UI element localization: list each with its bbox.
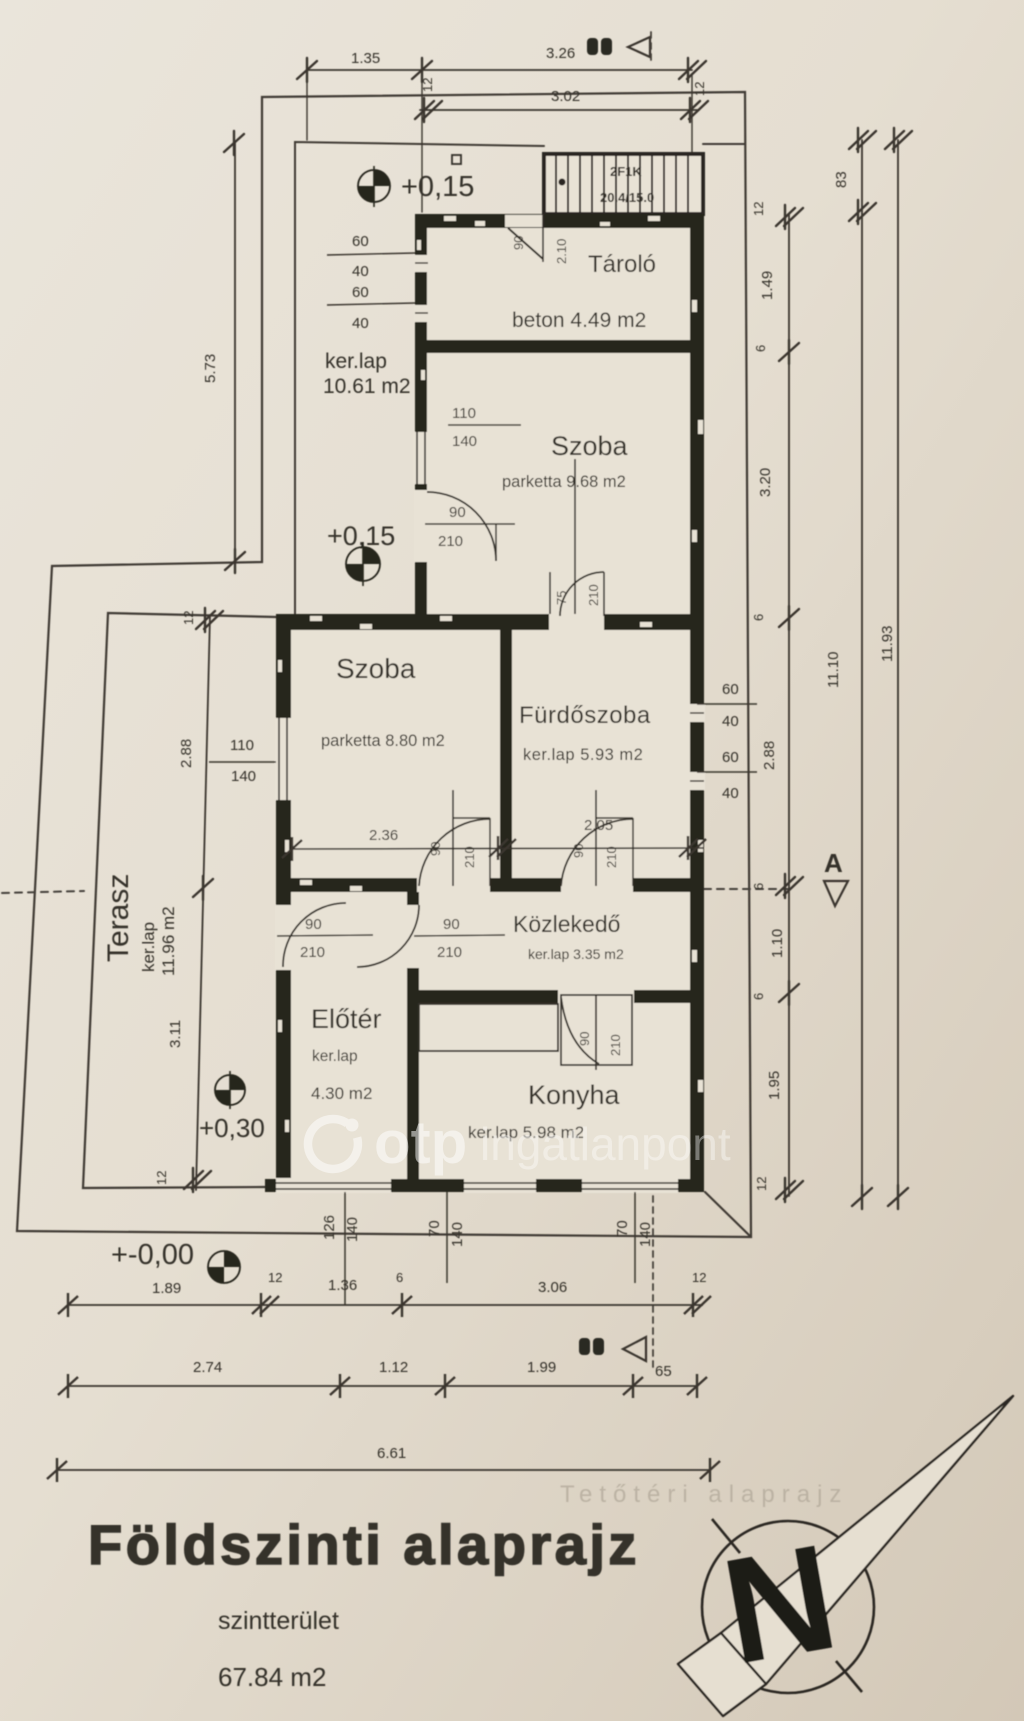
- svg-text:70: 70: [426, 1220, 443, 1237]
- svg-text:210: 210: [438, 533, 463, 550]
- svg-text:210: 210: [437, 944, 462, 961]
- svg-text:+-0,00: +-0,00: [111, 1239, 194, 1271]
- svg-text:2.10: 2.10: [554, 239, 569, 264]
- svg-text:3.20: 3.20: [757, 468, 774, 497]
- svg-text:6.61: 6.61: [377, 1445, 406, 1462]
- svg-text:12: 12: [154, 1171, 169, 1185]
- svg-text:3.06: 3.06: [538, 1279, 567, 1296]
- svg-text:90: 90: [305, 916, 322, 933]
- svg-text:2.05: 2.05: [584, 817, 613, 834]
- svg-text:140: 140: [449, 1222, 466, 1247]
- svg-text:parketta 9.68 m2: parketta 9.68 m2: [502, 473, 626, 491]
- svg-text:12: 12: [268, 1270, 282, 1285]
- svg-text:11.93: 11.93: [879, 626, 896, 662]
- svg-text:Közlekedő: Közlekedő: [513, 911, 620, 937]
- svg-text:ker.lap: ker.lap: [139, 922, 158, 972]
- svg-text:5.73: 5.73: [202, 354, 219, 383]
- svg-text:140: 140: [452, 433, 477, 450]
- svg-text:12: 12: [751, 202, 766, 216]
- svg-text:2.88: 2.88: [761, 741, 778, 770]
- svg-text:3.11: 3.11: [167, 1020, 184, 1048]
- svg-text:90: 90: [511, 236, 526, 250]
- svg-text:110: 110: [452, 405, 476, 422]
- svg-text:beton 4.49 m2: beton 4.49 m2: [512, 309, 646, 332]
- svg-text:90: 90: [443, 916, 460, 933]
- svg-text:60: 60: [722, 681, 739, 698]
- svg-text:40: 40: [722, 713, 739, 730]
- svg-text:90: 90: [428, 842, 443, 856]
- svg-text:12: 12: [754, 1177, 769, 1191]
- svg-text:otp: otp: [374, 1109, 467, 1176]
- svg-text:10.61 m2: 10.61 m2: [323, 375, 411, 398]
- svg-text:40: 40: [352, 315, 369, 332]
- svg-text:3.02: 3.02: [551, 88, 580, 105]
- svg-text:ker.lap 3.35 m2: ker.lap 3.35 m2: [528, 946, 624, 962]
- svg-text:140: 140: [231, 768, 256, 785]
- svg-text:60: 60: [722, 749, 739, 766]
- svg-text:2.88: 2.88: [178, 739, 195, 768]
- svg-text:6: 6: [753, 345, 768, 352]
- svg-text:1.89: 1.89: [152, 1280, 181, 1297]
- svg-text:4.30 m2: 4.30 m2: [311, 1084, 372, 1103]
- svg-text:Tetőtéri alaprajz: Tetőtéri alaprajz: [560, 1481, 848, 1508]
- svg-text:60: 60: [352, 284, 369, 301]
- svg-text:Fürdőszoba: Fürdőszoba: [519, 702, 651, 729]
- svg-text:70: 70: [614, 1220, 631, 1237]
- svg-text:1.10: 1.10: [769, 929, 786, 958]
- svg-text:1.36: 1.36: [328, 1277, 357, 1294]
- svg-text:210: 210: [300, 944, 325, 961]
- svg-text:parketta 8.80 m2: parketta 8.80 m2: [321, 732, 445, 750]
- svg-text:40: 40: [352, 263, 369, 280]
- svg-text:2.36: 2.36: [369, 827, 398, 844]
- svg-text:Tároló: Tároló: [588, 251, 656, 278]
- svg-text:1.12: 1.12: [379, 1359, 408, 1376]
- svg-text:60: 60: [352, 233, 369, 250]
- svg-text:12: 12: [181, 611, 196, 625]
- svg-text:90: 90: [571, 844, 586, 858]
- svg-text:ker.lap: ker.lap: [312, 1048, 358, 1065]
- svg-text:ker.lap: ker.lap: [325, 350, 387, 373]
- svg-text:126: 126: [321, 1215, 338, 1240]
- svg-text:3.26: 3.26: [546, 45, 575, 62]
- svg-text:210: 210: [462, 846, 477, 868]
- svg-text:90: 90: [577, 1032, 592, 1046]
- svg-text:1.49: 1.49: [759, 271, 776, 300]
- svg-text:40: 40: [722, 785, 739, 802]
- svg-text:210: 210: [586, 584, 601, 606]
- svg-text:6: 6: [751, 614, 766, 621]
- svg-text:20.4/15.0: 20.4/15.0: [600, 190, 654, 205]
- svg-text:210: 210: [604, 846, 619, 868]
- svg-text:Szoba: Szoba: [551, 431, 629, 461]
- svg-text:ker.lap 5.93 m2: ker.lap 5.93 m2: [523, 746, 643, 764]
- svg-text:90: 90: [449, 504, 466, 521]
- svg-text:11.10: 11.10: [825, 652, 842, 688]
- svg-text:Konyha: Konyha: [528, 1080, 621, 1110]
- svg-text:1.99: 1.99: [527, 1359, 556, 1376]
- svg-text:A: A: [824, 848, 843, 878]
- svg-text:75: 75: [554, 591, 569, 605]
- svg-text:6: 6: [396, 1270, 403, 1285]
- svg-text:83: 83: [833, 171, 850, 188]
- svg-text:Terasz: Terasz: [102, 874, 135, 962]
- svg-text:1.95: 1.95: [766, 1071, 783, 1100]
- svg-text:szintterület: szintterület: [218, 1607, 339, 1635]
- svg-text:110: 110: [230, 737, 254, 754]
- svg-text:140: 140: [344, 1217, 361, 1242]
- svg-text:12: 12: [692, 1270, 706, 1285]
- svg-text:2.74: 2.74: [193, 1359, 222, 1376]
- svg-text:ingatlanpont: ingatlanpont: [480, 1118, 731, 1170]
- svg-text:140: 140: [637, 1222, 654, 1247]
- svg-text:11.96 m2: 11.96 m2: [159, 906, 178, 976]
- svg-text:65: 65: [655, 1363, 672, 1380]
- svg-text:67.84 m2: 67.84 m2: [218, 1662, 326, 1692]
- svg-text:+0,15: +0,15: [401, 171, 474, 203]
- svg-text:210: 210: [608, 1034, 623, 1056]
- svg-text:6: 6: [751, 883, 766, 890]
- svg-text:Szoba: Szoba: [336, 653, 416, 684]
- svg-text:6: 6: [751, 993, 766, 1000]
- svg-text:2F1K: 2F1K: [610, 164, 642, 179]
- svg-text:1.35: 1.35: [351, 50, 380, 67]
- svg-text:Előtér: Előtér: [311, 1004, 382, 1034]
- svg-text:Földszinti alaprajz: Földszinti alaprajz: [88, 1513, 640, 1576]
- svg-text:12: 12: [692, 82, 707, 96]
- svg-text:+0,30: +0,30: [199, 1113, 265, 1143]
